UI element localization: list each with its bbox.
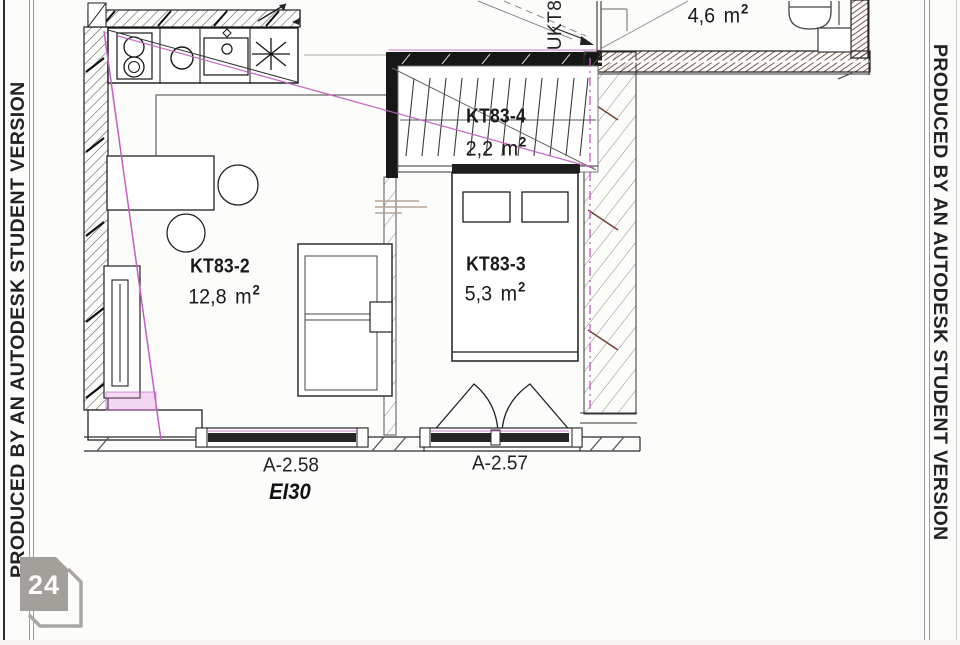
- toilet-symbol: [789, 1, 851, 52]
- kitchen-zone-line: [156, 95, 386, 156]
- room-label-kt83-3: KT83-3: [466, 254, 526, 277]
- opening-label-a257: A-2.57: [472, 453, 528, 476]
- right-inner-line: [924, 0, 925, 640]
- window-a258: [196, 428, 368, 447]
- pillow: [463, 192, 510, 222]
- page-number: 24: [20, 560, 68, 610]
- fire-rating-label: EI30: [269, 479, 311, 505]
- annotation-micro-text: [375, 200, 431, 218]
- watermark-right: PRODUCED BY AN AUTODESK STUDENT VERSION: [928, 44, 951, 574]
- room-area-kt83-4: 2,2m2: [466, 135, 527, 162]
- pillow: [522, 192, 568, 222]
- room-area-bathroom: 4,6m2: [688, 2, 749, 29]
- chair: [218, 165, 258, 205]
- bathroom-diagonal: [602, 1, 688, 48]
- stove-symbol: [117, 33, 152, 79]
- left-border-line: [3, 0, 5, 640]
- kitchen-counter: [108, 28, 386, 156]
- floor-plan-drawing: [0, 0, 960, 640]
- watermark-left: PRODUCED BY AN AUTODESK STUDENT VERSION: [7, 48, 30, 578]
- opening-label-a258: A-2.58: [263, 455, 319, 478]
- ceiling-light-symbol: [252, 38, 290, 70]
- sofa: [298, 244, 392, 396]
- scanned-drawing-sheet: KT83-2 12,8m2 KT83-3 5,3m2 KT83-4 2,2m2 …: [0, 0, 960, 640]
- chair: [167, 214, 205, 252]
- room-label-kt83-4: KT83-4: [466, 106, 526, 129]
- radiator: [104, 266, 156, 410]
- room-area-kt83-3: 5,3m2: [465, 280, 526, 307]
- room-area-kt83-2: 12,8m2: [188, 283, 260, 310]
- room-label-kt83-2: KT83-2: [190, 256, 250, 279]
- dining-table: [107, 156, 258, 252]
- door-a257: [420, 428, 582, 447]
- corner-cabinet: [88, 410, 202, 440]
- right-border-line: [956, 0, 957, 640]
- left-inner-line-2: [33, 0, 34, 640]
- washbasin-symbol: [818, 28, 851, 52]
- duct-label: UKT8: [545, 0, 567, 50]
